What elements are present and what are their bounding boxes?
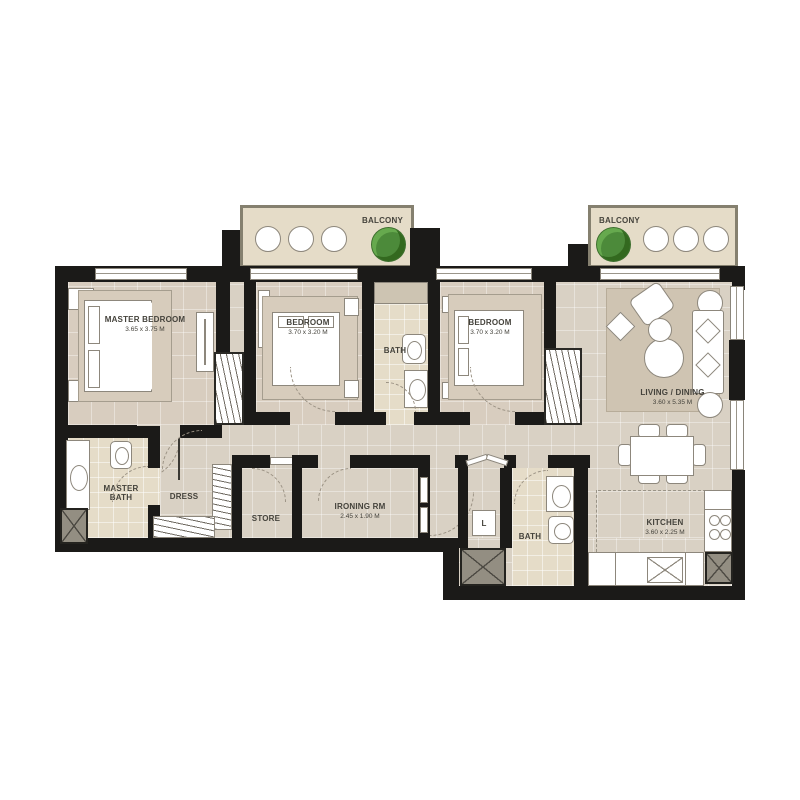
service-shaft <box>460 548 506 586</box>
wall <box>418 455 430 552</box>
stove-burner <box>720 515 731 526</box>
nightstand <box>344 298 359 316</box>
kitchen-counter <box>588 552 704 586</box>
door-leaf <box>420 507 428 533</box>
wall <box>729 340 745 400</box>
room-name: BEDROOM <box>286 318 329 327</box>
wall <box>414 412 428 425</box>
washbasin <box>546 476 574 512</box>
wall <box>350 455 418 468</box>
wall <box>443 586 745 600</box>
kitchen-boundary-dashed <box>598 490 706 492</box>
store-label: STORE <box>236 514 296 523</box>
wall <box>148 426 160 468</box>
basin-bowl <box>552 485 571 508</box>
bath-bottom-label: BATH <box>502 532 558 541</box>
wardrobe <box>544 348 582 425</box>
plant <box>372 228 405 261</box>
dresser <box>196 312 214 372</box>
balcony-chair <box>643 226 669 252</box>
toilet <box>110 441 132 469</box>
kitchen-label: KITCHEN 3.60 x 2.25 M <box>610 518 720 537</box>
window <box>730 400 744 470</box>
balcony-chair <box>255 226 281 252</box>
bedroom-right-label: BEDROOM 3.70 x 3.20 M <box>450 318 530 337</box>
balcony-right-label: BALCONY <box>599 216 669 225</box>
wall <box>428 282 440 425</box>
balcony-door-window <box>600 268 720 280</box>
wall <box>568 244 588 268</box>
wall <box>222 230 240 268</box>
room-dims: 3.70 x 3.20 M <box>450 328 530 337</box>
balcony-left: BALCONY <box>240 205 414 268</box>
coffee-table <box>644 338 684 378</box>
laundry-label: L <box>473 519 495 528</box>
wall <box>244 282 256 425</box>
wall <box>292 455 302 552</box>
bedroom-mid-label: BEDROOM 3.70 x 3.20 M <box>268 318 348 337</box>
counter-line <box>615 553 616 585</box>
service-shaft <box>705 552 733 584</box>
service-shaft <box>374 282 428 304</box>
wall <box>335 412 362 425</box>
kitchen-sink <box>647 557 683 583</box>
hanging-rail <box>153 516 215 538</box>
service-shaft <box>60 508 88 544</box>
ironing-room-label: IRONING RM 2.45 x 1.90 M <box>305 502 415 521</box>
nightstand <box>344 380 359 398</box>
wall <box>302 455 318 468</box>
room-dims: 2.45 x 1.90 M <box>305 512 415 521</box>
door-leaf <box>270 457 294 465</box>
kitchen-boundary-dashed <box>596 490 598 552</box>
dining-chair <box>692 444 706 466</box>
wall <box>232 455 242 552</box>
room-dims: 3.60 x 5.35 M <box>615 398 730 407</box>
side-table <box>648 318 672 342</box>
wall <box>732 470 745 600</box>
wall <box>458 468 468 548</box>
balcony-door-window <box>250 268 358 280</box>
room-dims: 3.70 x 3.20 M <box>268 328 348 337</box>
wall <box>216 282 230 354</box>
window <box>95 268 187 280</box>
floor-plan: BALCONY BALCONY MASTER BEDROOM <box>0 0 800 800</box>
balcony-left-label: BALCONY <box>333 216 403 225</box>
wall <box>544 282 556 348</box>
master-bedroom-label: MASTER BEDROOM 3.65 x 3.75 M <box>95 315 195 334</box>
room-dims: 3.65 x 3.75 M <box>95 325 195 334</box>
wall <box>440 412 470 425</box>
shower-tray <box>70 465 88 491</box>
room-name: BEDROOM <box>468 318 511 327</box>
room-name: MASTER BEDROOM <box>105 315 186 324</box>
wall <box>374 412 386 425</box>
pillow <box>88 350 100 388</box>
dining-table <box>630 436 694 476</box>
balcony-chair <box>703 226 729 252</box>
wall <box>232 455 270 468</box>
balcony-chair <box>673 226 699 252</box>
wall <box>55 426 148 438</box>
wardrobe <box>214 352 244 425</box>
balcony-chair <box>288 226 314 252</box>
room-name: LIVING / DINING <box>640 388 704 397</box>
window <box>436 268 532 280</box>
window <box>730 286 744 340</box>
laundry-box: L <box>472 510 496 536</box>
bath-top-label: BATH <box>372 346 418 355</box>
room-dims: 3.60 x 2.25 M <box>610 528 720 537</box>
balcony-right: BALCONY <box>588 205 738 268</box>
plant <box>597 228 630 261</box>
room-name: KITCHEN <box>647 518 684 527</box>
dresser-line <box>204 319 206 365</box>
pillow <box>458 348 469 376</box>
toilet-bowl <box>115 447 129 465</box>
room-name: IRONING RM <box>335 502 386 511</box>
wall <box>55 538 455 552</box>
shower <box>66 440 90 510</box>
counter-line <box>705 509 731 510</box>
living-dining-label: LIVING / DINING 3.60 x 5.35 M <box>615 388 730 407</box>
wall <box>256 412 290 425</box>
wall <box>574 455 588 586</box>
counter-line <box>685 553 686 585</box>
hanging-rail <box>212 464 232 530</box>
wall <box>515 412 546 425</box>
balcony-chair <box>321 226 347 252</box>
door-leaf <box>420 477 428 503</box>
dress-label: DRESS <box>158 492 210 501</box>
stove-burner <box>720 529 731 540</box>
